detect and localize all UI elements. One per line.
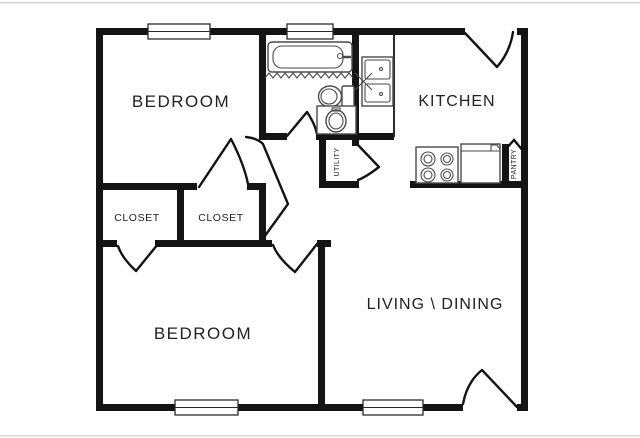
door-front-entry: [463, 370, 517, 407]
door-closet-left: [118, 244, 158, 271]
refrigerator-fixture: [461, 144, 500, 183]
bottom-edge-line: [0, 435, 640, 437]
window-bedroom1: [148, 24, 210, 39]
wall-utility-west: [319, 138, 326, 188]
wall-bedroom1-east: [259, 35, 266, 138]
label-living-dining: LIVING \ DINING: [367, 296, 504, 313]
wall-outer-top-stub: [517, 28, 528, 35]
window-living: [363, 400, 423, 415]
label-utility: UTILITY: [334, 148, 341, 177]
walls: [96, 28, 528, 411]
vanity-sink-fixture: [317, 106, 356, 134]
label-bedroom-top: BEDROOM: [132, 92, 230, 111]
wall-closet-divider: [177, 183, 184, 247]
fixtures: [265, 42, 500, 183]
floor-plan: BEDROOM BEDROOM KITCHEN LIVING \ DINING …: [0, 0, 640, 438]
label-closet-left: CLOSET: [114, 212, 160, 224]
wall-bedroom2-north-mid: [155, 240, 272, 247]
label-kitchen: KITCHEN: [418, 93, 495, 110]
stove-fixture: [416, 147, 458, 183]
door-bedroom2: [273, 244, 317, 272]
wall-bath-south-west: [259, 133, 287, 140]
kitchen-sink-fixture: [355, 57, 393, 106]
wall-outer-left: [96, 28, 103, 411]
wall-outer-bottom-stub: [517, 404, 528, 411]
label-closet-right: CLOSET: [198, 212, 244, 224]
floor-plan-drawing: BEDROOM BEDROOM KITCHEN LIVING \ DINING …: [0, 0, 640, 438]
door-closet-right: [199, 139, 248, 187]
top-edge-line: [0, 2, 640, 4]
label-pantry: PANTRY: [511, 149, 518, 179]
bathtub-fixture: [265, 42, 353, 78]
shower-curtain: [265, 73, 353, 78]
wall-bedroom2-north-west: [96, 240, 117, 247]
window-bedroom2: [175, 400, 238, 415]
toilet-fixture: [319, 86, 355, 107]
window-bathroom: [287, 24, 333, 39]
wall-outer-right: [521, 28, 528, 411]
door-kitchen-entry: [465, 32, 513, 67]
door-utility: [357, 144, 379, 180]
wall-living-west: [318, 240, 325, 411]
door-bathroom: [287, 112, 317, 136]
wall-utility-south: [319, 181, 359, 188]
label-bedroom-bottom: BEDROOM: [154, 324, 252, 343]
